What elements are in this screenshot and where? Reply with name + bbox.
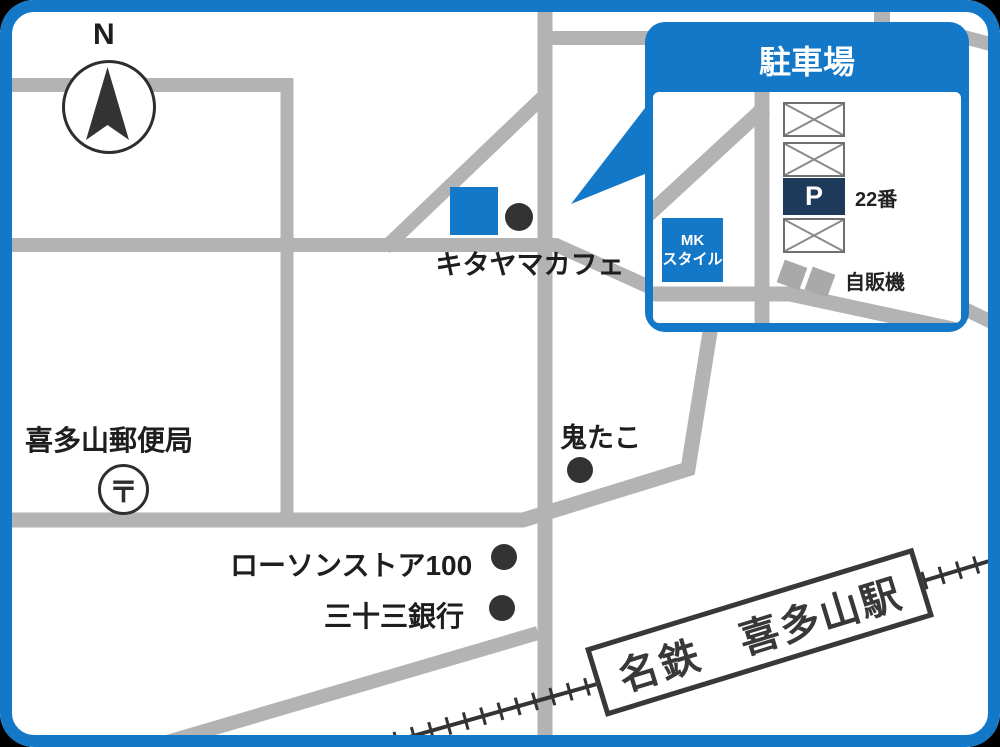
north-arrow-icon [65, 63, 153, 151]
post-office-symbol: 〒 [98, 464, 149, 515]
takoyaki-dot [567, 457, 593, 483]
road-bottom-diagonal [150, 633, 538, 747]
parking-space-occupied-3 [783, 218, 845, 253]
north-label: N [93, 18, 115, 52]
mk-style-building: MK スタイル [662, 218, 723, 282]
cafe-dot [505, 203, 533, 231]
assigned-parking-spot: P [783, 178, 845, 215]
parking-space-occupied-2 [783, 142, 845, 177]
inset-pointer-arrow [571, 108, 645, 204]
x-mark-icon [785, 104, 843, 135]
convenience-store-dot [491, 544, 517, 570]
railway-line-left [395, 684, 597, 741]
parking-spot-number: 22番 [855, 183, 897, 212]
x-mark-icon [785, 144, 843, 175]
takoyaki-label: 鬼たこ [560, 416, 641, 455]
inset-road-diagonal [653, 107, 765, 216]
parking-inset-map: P 22番 MK スタイル 自販機 [653, 92, 961, 323]
cafe-label: キタヤマカフェ [430, 243, 630, 282]
x-mark-icon [785, 220, 843, 251]
parking-space-occupied-1 [783, 102, 845, 137]
cafe-building-marker [450, 187, 498, 235]
mk-style-line2: スタイル [662, 250, 722, 270]
post-office-label: 喜多山郵便局 [25, 419, 193, 459]
parking-inset-title: 駐車場 [645, 37, 969, 83]
map-canvas: N キタヤマカフェ 喜多山郵便局 〒 鬼たこ ローソンストア100 三十三銀行 … [0, 0, 1000, 747]
mk-style-line1: MK [681, 231, 704, 251]
vending-machine-label: 自販機 [845, 266, 905, 295]
inset-road-bottom [653, 294, 961, 323]
parking-p-symbol: P [805, 181, 823, 212]
convenience-store-label: ローソンストア100 [230, 544, 472, 584]
bank-dot [489, 595, 515, 621]
compass-icon [62, 60, 156, 154]
parking-inset-panel: 駐車場 P 22番 MK [645, 22, 969, 332]
bank-label: 三十三銀行 [324, 595, 464, 635]
